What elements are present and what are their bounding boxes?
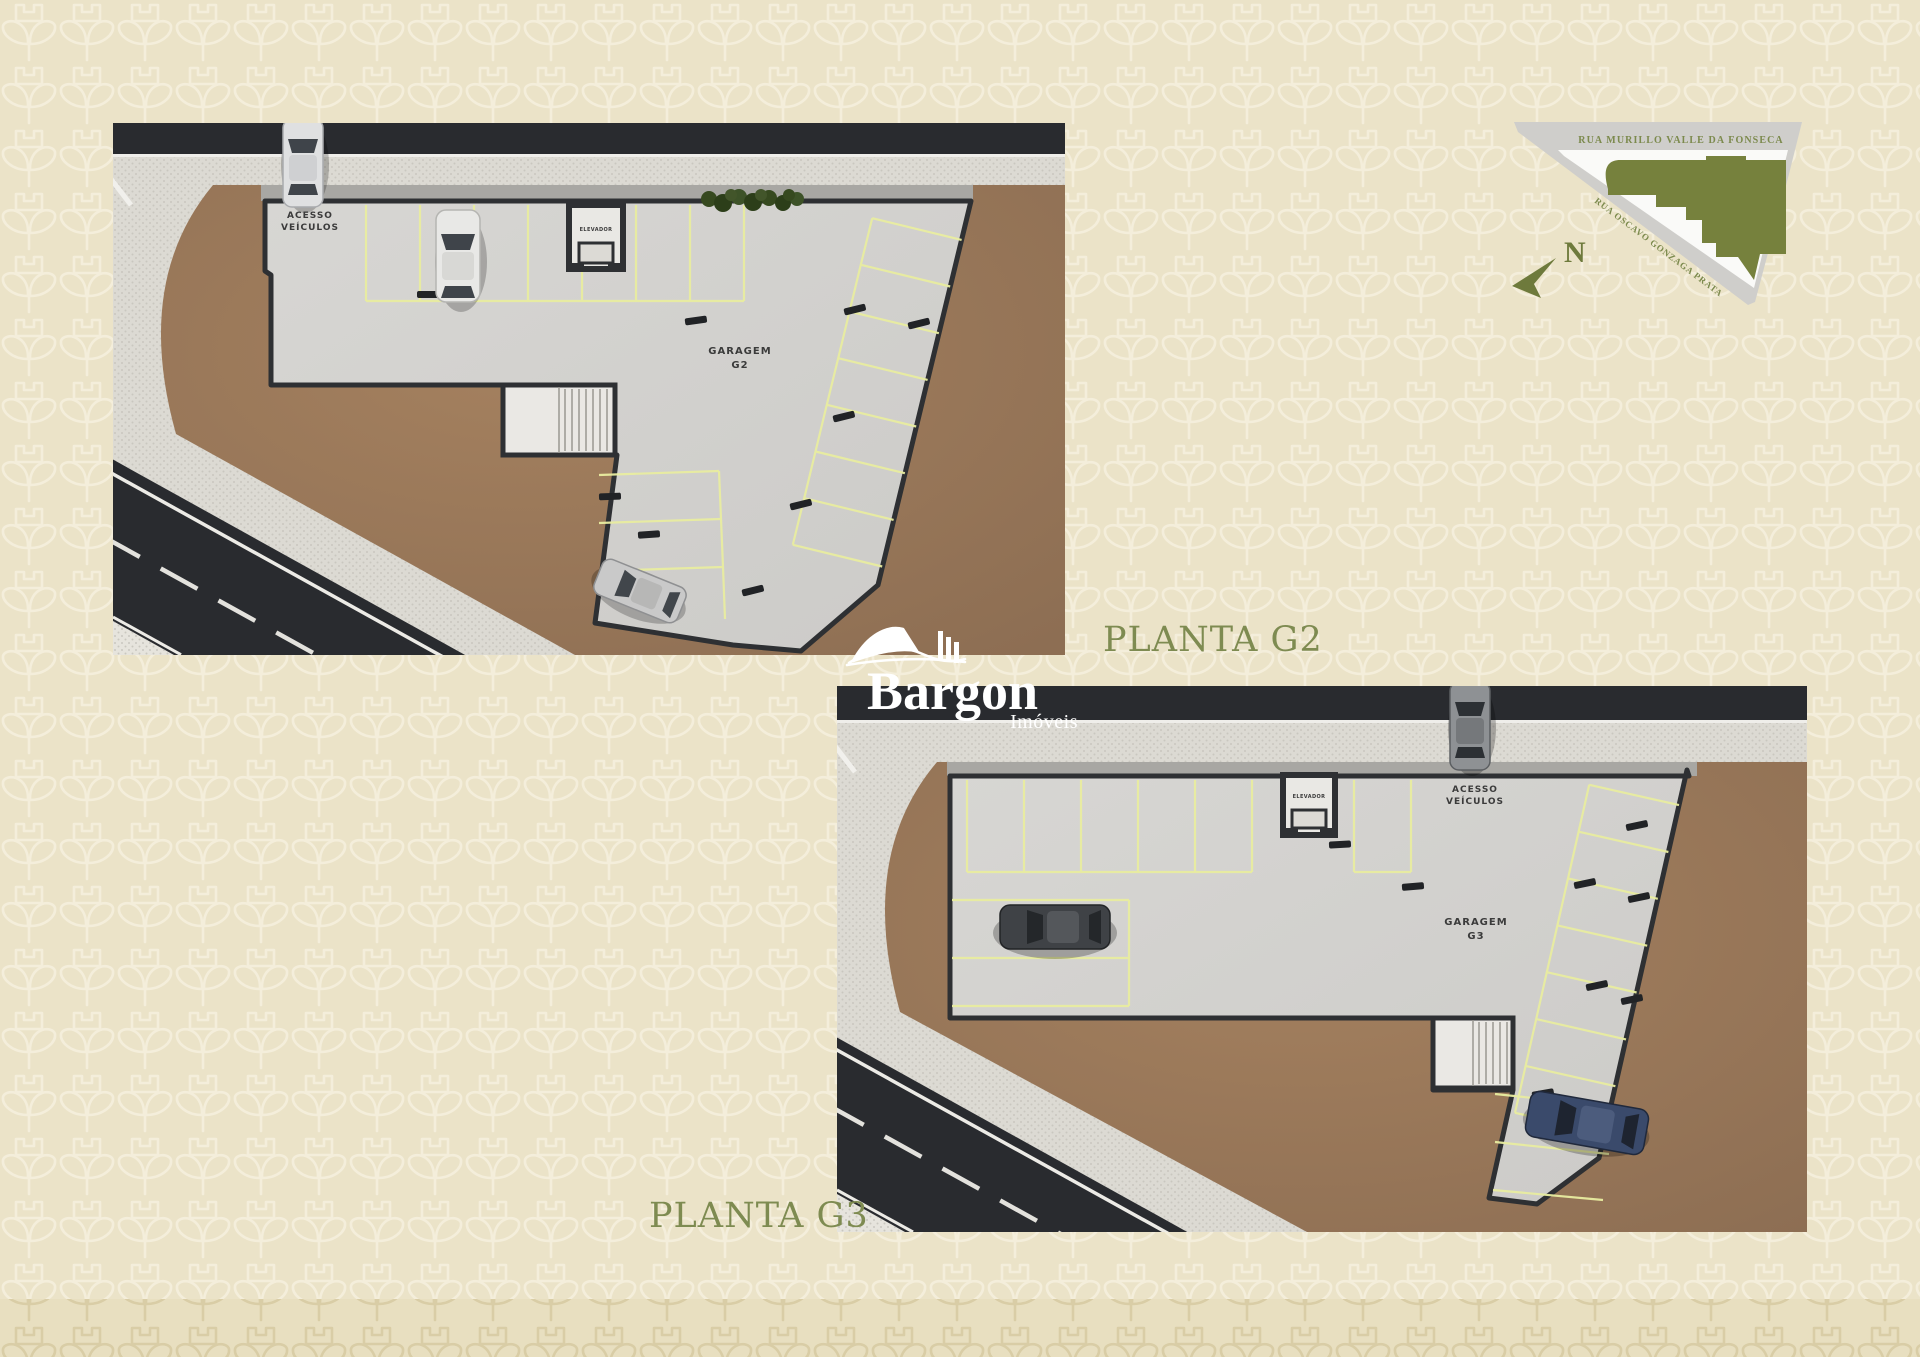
street-top (113, 123, 1065, 157)
elevator: ELEVADOR (1283, 775, 1335, 836)
access-label-line1: ACESSO (287, 211, 333, 221)
elevator-label: ELEVADOR (1293, 794, 1326, 800)
garage-label-line1: GARAGEM (708, 346, 771, 357)
car-parked-white (435, 210, 487, 312)
north-arrow-icon (1512, 258, 1556, 298)
access-label-line1: ACESSO (1452, 785, 1498, 795)
bargon-logo-subtitle: Imóveis (1010, 711, 1078, 733)
access-label-line2: VEÍCULOS (1446, 795, 1504, 807)
car-street-gray (1448, 686, 1496, 776)
elevator-label: ELEVADOR (580, 227, 613, 233)
elevator: ELEVADOR (569, 205, 623, 271)
flyer-page: ELEVADOR (0, 0, 1920, 1357)
stairs (503, 385, 615, 455)
garage-label-line2: G2 (731, 360, 748, 371)
garage-label-line2: G3 (1467, 931, 1484, 942)
planta-g3-image: ELEVADOR ACESSO VEÍCULOS GARAGEM (837, 686, 1807, 1232)
planta-g2-image: ELEVADOR (113, 123, 1065, 655)
car-parked-dark (993, 905, 1117, 959)
bargon-logo: Bargon Imóveis (845, 615, 1090, 733)
location-map: RUA MURILLO VALLE DA FONSECA RUA OSCAVO … (1508, 116, 1808, 311)
north-label: N (1564, 236, 1586, 269)
map-street-top-label: RUA MURILLO VALLE DA FONSECA (1578, 135, 1783, 146)
compass: N (1512, 236, 1586, 298)
bargon-logo-icon (847, 628, 965, 665)
car-street-white (281, 123, 329, 213)
stairs (1433, 1018, 1513, 1088)
planta-g3-caption: PLANTA G3 (649, 1196, 869, 1236)
planta-g2-caption: PLANTA G2 (1103, 620, 1323, 660)
access-label-line2: VEÍCULOS (281, 221, 339, 233)
garage-label-line1: GARAGEM (1444, 917, 1507, 928)
